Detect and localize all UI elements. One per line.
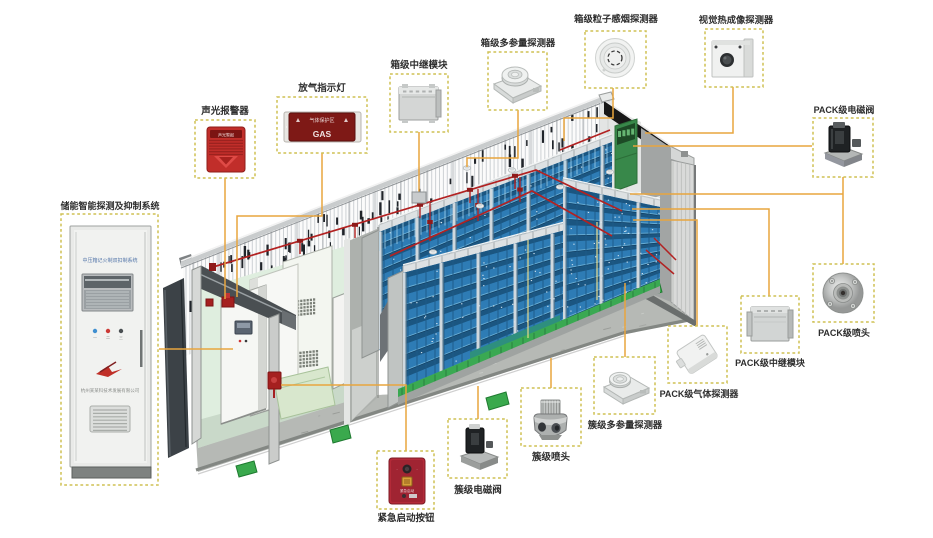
svg-text:·: · xyxy=(396,467,397,472)
svg-text:PACK级中继模块: PACK级中继模块 xyxy=(735,357,806,368)
svg-text:簇级电磁阀: 簇级电磁阀 xyxy=(453,484,502,496)
svg-text:箱级中继模块: 箱级中继模块 xyxy=(389,59,448,71)
svg-text:簇级喷头: 簇级喷头 xyxy=(531,451,571,463)
svg-text:PACK级电磁阀: PACK级电磁阀 xyxy=(814,104,875,115)
svg-text:杭州某某科技术发展有限公司: 杭州某某科技术发展有限公司 xyxy=(81,387,140,394)
svg-text:簇级多参量探测器: 簇级多参量探测器 xyxy=(587,419,663,430)
svg-text:声光报警器: 声光报警器 xyxy=(200,105,249,117)
svg-text:GAS: GAS xyxy=(313,129,332,139)
svg-text:中压箱记火制双扣制系统: 中压箱记火制双扣制系统 xyxy=(82,257,137,264)
svg-text:声光警报: 声光警报 xyxy=(218,132,234,138)
svg-text:二: 二 xyxy=(106,335,110,340)
svg-text:视觉热成像探测器: 视觉热成像探测器 xyxy=(699,14,774,25)
svg-text:箱级多参量探测器: 箱级多参量探测器 xyxy=(481,37,556,48)
svg-text:PACK级喷头: PACK级喷头 xyxy=(818,327,870,338)
svg-text:·: · xyxy=(416,467,417,472)
svg-text:储能智能探测及抑制系统: 储能智能探测及抑制系统 xyxy=(60,200,159,211)
svg-text:放气指示灯: 放气指示灯 xyxy=(297,82,346,94)
svg-text:箱级粒子感烟探测器: 箱级粒子感烟探测器 xyxy=(574,13,658,24)
svg-text:气体保护区: 气体保护区 xyxy=(309,117,334,124)
svg-text:PACK级气体探测器: PACK级气体探测器 xyxy=(660,388,740,399)
svg-text:一: 一 xyxy=(93,335,97,340)
svg-text:三: 三 xyxy=(119,335,123,340)
svg-text:紧急启动按钮: 紧急启动按钮 xyxy=(377,512,435,524)
svg-text:紧急启动: 紧急启动 xyxy=(400,488,415,493)
